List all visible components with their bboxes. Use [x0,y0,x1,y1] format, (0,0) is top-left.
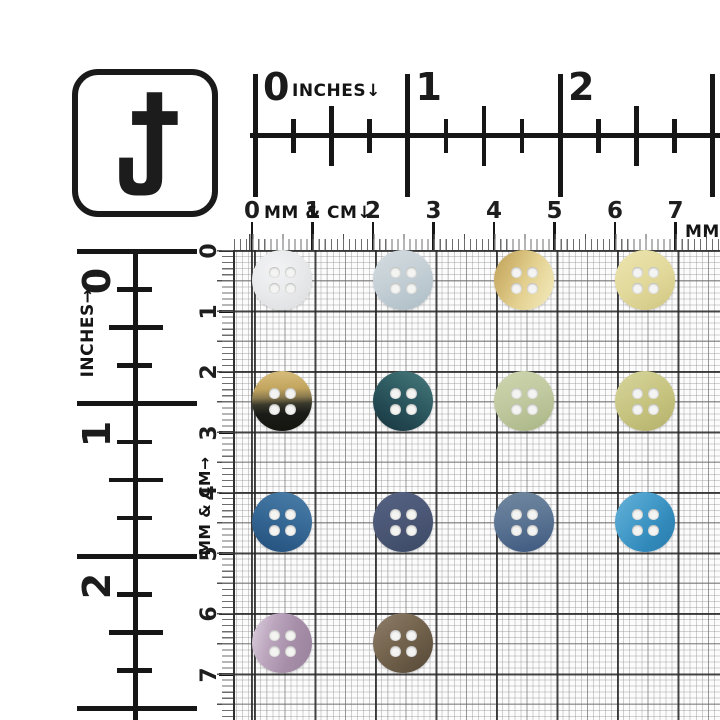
top-inch-number: 1 [416,68,442,106]
button-hole [632,283,643,294]
inch-quarter-tick [520,119,525,153]
button-hole [632,388,643,399]
left-inches-label: INCHES→ [78,289,98,378]
button-size-chart-photo: J 012 INCHES↓ 01234567 MM & CM↓ MM 012 I… [0,0,720,720]
inch-major-tick [77,249,197,254]
inch-major-tick [77,706,197,711]
left-mm-ticks [222,250,233,720]
button-hole [390,525,401,536]
button-hole [390,404,401,415]
button-hole [406,525,417,536]
inch-quarter-tick [672,119,677,153]
button-hole [390,267,401,278]
left-mm-cm-label: MM & CM→ [196,457,214,556]
button-hole [406,404,417,415]
button-hole [285,509,296,520]
button-hole [406,267,417,278]
button-hole [406,283,417,294]
button-hole [632,404,643,415]
button-hole [269,509,280,520]
button-hole [269,404,280,415]
button-hole [406,646,417,657]
inch-quarter-tick [117,440,152,445]
top-cm-number: 4 [486,200,502,223]
button-hole [390,646,401,657]
left-inch-number: 2 [78,573,116,599]
button-hole [632,525,643,536]
inch-quarter-tick [291,119,296,153]
inch-quarter-tick [117,592,152,597]
inch-quarter-tick [117,516,152,521]
button-hole [269,646,280,657]
button-hole [511,283,522,294]
top-inch-number: 0 [263,68,289,106]
inch-half-tick [109,325,163,330]
inch-quarter-tick [444,119,449,153]
button-hole [285,404,296,415]
inch-quarter-tick [596,119,601,153]
button-hole [527,283,538,294]
button-hole [648,404,659,415]
button-hole [511,267,522,278]
inch-half-tick [482,106,487,166]
top-mm-cm-label: MM & CM↓ [264,203,372,223]
button-hole [648,283,659,294]
button-hole [285,267,296,278]
button-hole [511,509,522,520]
button-hole [285,525,296,536]
inch-half-tick [109,630,163,635]
button-hole [269,630,280,641]
inch-major-tick [77,401,197,406]
top-mm-ticks [233,239,720,250]
button-hole [285,630,296,641]
top-cm-number: 6 [607,200,623,223]
inch-half-tick [634,106,639,166]
button-hole [648,267,659,278]
button-hole [527,509,538,520]
button-hole [406,509,417,520]
inch-quarter-tick [117,668,152,673]
button-hole [390,283,401,294]
button-hole [406,388,417,399]
inch-major-tick [558,74,563,197]
button-hole [527,388,538,399]
button-hole [285,388,296,399]
inch-quarter-tick [367,119,372,153]
button-hole [648,525,659,536]
button-hole [285,646,296,657]
button-hole [406,630,417,641]
inch-major-tick [77,554,197,559]
left-inch-number: 1 [78,420,116,446]
top-cm-number: 0 [244,200,260,223]
top-inch-number: 2 [568,68,594,106]
button-hole [527,267,538,278]
brand-logo: J [72,69,218,217]
inch-half-tick [109,478,163,483]
top-cm-number: 7 [667,200,683,223]
inch-major-tick [253,74,258,197]
inch-major-tick [710,74,715,197]
button-hole [632,267,643,278]
inch-quarter-tick [117,287,152,292]
button-hole [390,388,401,399]
button-hole [632,509,643,520]
button-hole [511,525,522,536]
top-inches-label: INCHES↓ [292,81,381,101]
inch-quarter-tick [117,363,152,368]
top-cm-number: 5 [546,200,562,223]
button-hole [511,388,522,399]
letter-j-icon [102,87,188,199]
button-hole [269,267,280,278]
inch-major-tick [405,74,410,197]
button-hole [648,388,659,399]
button-hole [269,283,280,294]
button-hole [269,388,280,399]
button-hole [511,404,522,415]
inch-half-tick [329,106,334,166]
left-inch-ruler-line [133,249,138,720]
button-hole [269,525,280,536]
button-hole [648,509,659,520]
button-hole [527,525,538,536]
button-hole [285,283,296,294]
top-cm-number: 3 [425,200,441,223]
button-hole [527,404,538,415]
button-hole [390,509,401,520]
button-hole [390,630,401,641]
